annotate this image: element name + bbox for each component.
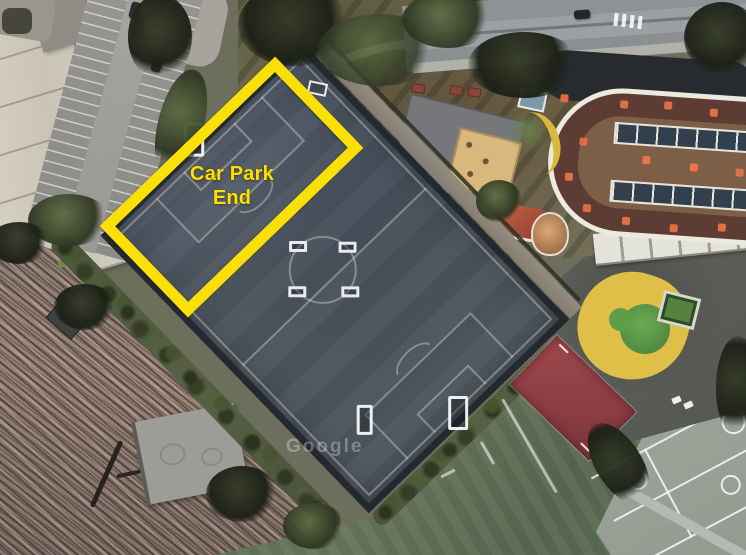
play-equipment (466, 141, 473, 148)
picnic-table (411, 83, 425, 94)
tree-canopy (206, 466, 278, 522)
picnic-table (467, 87, 481, 98)
tree-canopy (476, 180, 522, 222)
court-mark (559, 344, 569, 354)
picnic-table (449, 85, 463, 96)
tree-canopy (283, 503, 345, 549)
satellite-map: Car Park End Google (0, 0, 746, 555)
label-line-2: End (158, 186, 306, 210)
label-line-1: Car Park (158, 162, 306, 186)
training-mini-goal (341, 286, 359, 297)
goal-frame-small (357, 405, 373, 435)
car-park-end-label: Car Park End (158, 162, 306, 210)
play-equipment (482, 158, 489, 165)
training-mini-goal (288, 286, 306, 297)
car-on-road (574, 9, 591, 19)
playground-green-circle (609, 308, 632, 331)
roof-stain (199, 446, 224, 468)
goal-frame (448, 396, 468, 430)
google-watermark: Google (286, 436, 363, 458)
conical-roof-kiosk (531, 212, 569, 256)
court-circle (717, 471, 744, 498)
solar-panel-row (609, 180, 746, 215)
solar-panel-row (613, 122, 746, 157)
rooftop-vents (560, 94, 569, 103)
training-mini-goal (339, 242, 357, 253)
tree-shadow (468, 32, 580, 98)
roof-stain (158, 441, 188, 468)
training-mini-goal (289, 241, 307, 252)
play-equipment (467, 170, 474, 177)
curved-apartment-building (543, 83, 746, 248)
tree-canopy (54, 284, 116, 330)
rubble-pile (2, 8, 32, 34)
